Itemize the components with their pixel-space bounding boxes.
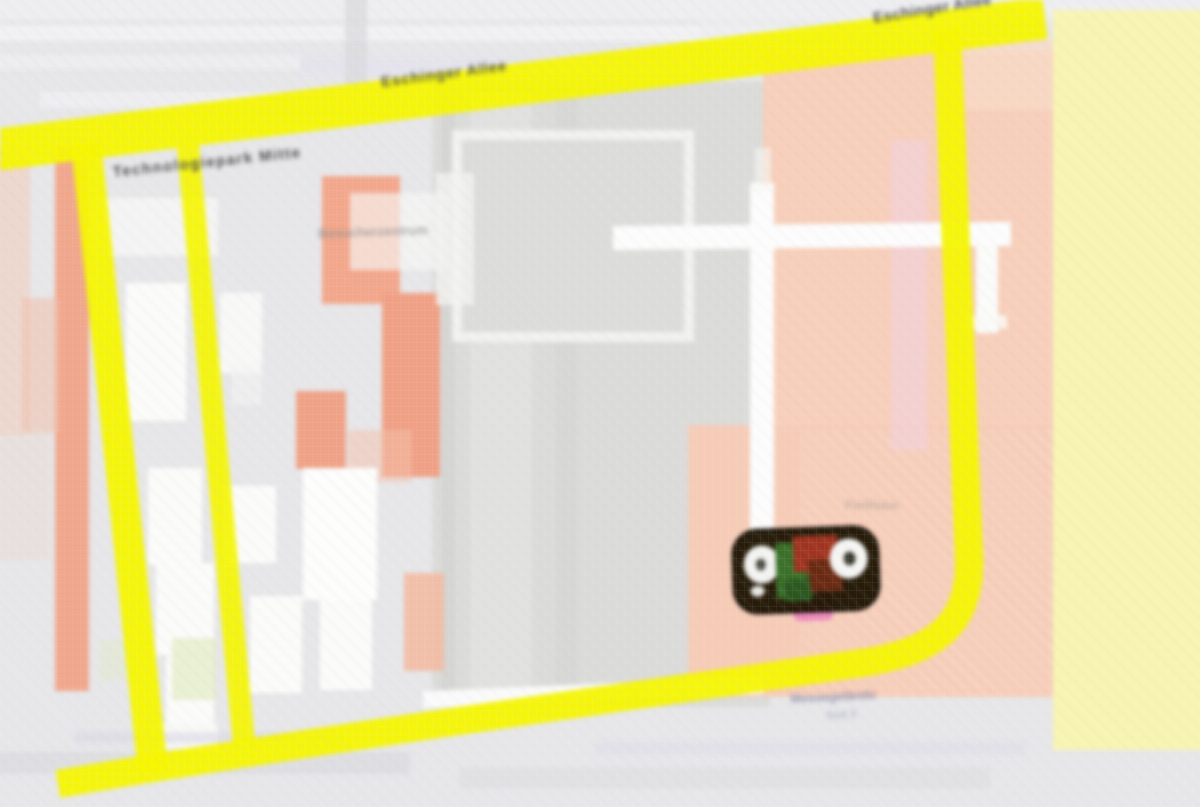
place-label-bottom: Messegelände <box>790 688 876 706</box>
place-label-center-left: Besucherzentrum <box>318 222 428 241</box>
street-label-upper-left: Technologiepark Mitte <box>112 144 302 181</box>
map-labels-layer: Eschinger Allee Eschinger Allee Technolo… <box>0 0 1200 807</box>
road-label-top-right: Eschinger Allee <box>872 0 993 27</box>
map-canvas[interactable]: Eschinger Allee Eschinger Allee Technolo… <box>0 0 1200 807</box>
road-label-top-center: Eschinger Allee <box>380 57 508 90</box>
place-label-bottom-2: Süd 3 <box>826 708 857 722</box>
place-label-salmon-area: Parkhaus <box>845 498 899 512</box>
